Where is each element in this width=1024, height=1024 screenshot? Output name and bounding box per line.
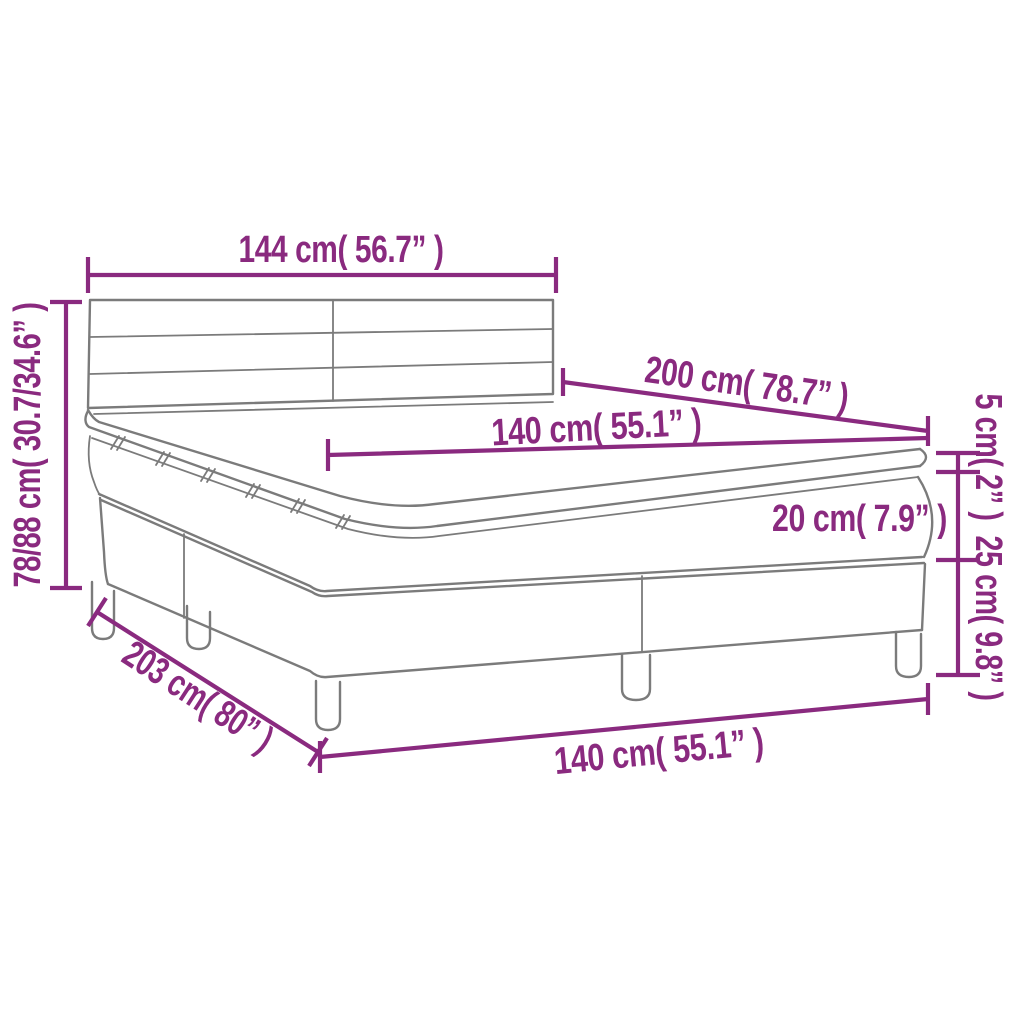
dim-headboard-width-label: 144 cm( 56.7” ) bbox=[239, 229, 444, 271]
dim-topper-height-label: 5 cm( 2” ) bbox=[967, 394, 1009, 521]
mattress-back-edge bbox=[94, 402, 553, 414]
topper-end-cap bbox=[920, 449, 926, 466]
headboard-stripe-1 bbox=[90, 329, 553, 337]
base-right-edge bbox=[922, 564, 925, 630]
leg-near-corner bbox=[316, 681, 340, 730]
bed-dimension-diagram: 144 cm( 56.7” ) 78/88 cm( 30.7/34.6” ) 2… bbox=[0, 0, 1024, 1024]
mattress-left-edge bbox=[89, 436, 100, 495]
base-left-edge bbox=[100, 498, 108, 584]
leg-foot-right bbox=[896, 632, 921, 677]
dim-headboard-width: 144 cm( 56.7” ) bbox=[88, 229, 556, 293]
dim-mattress-height-label: 20 cm( 7.9” ) bbox=[772, 498, 947, 540]
leg-front-left bbox=[92, 582, 114, 639]
dim-frame-length: 203 cm( 80” ) bbox=[88, 598, 327, 766]
dim-bed-height-line bbox=[50, 302, 82, 588]
dim-frame-length-label: 203 cm( 80” ) bbox=[115, 633, 280, 761]
dim-bed-height-label: 78/88 cm( 30.7/34.6” ) bbox=[7, 303, 49, 588]
dim-frame-width: 140 cm( 55.1” ) bbox=[320, 683, 928, 783]
diagram-canvas: 144 cm( 56.7” ) 78/88 cm( 30.7/34.6” ) 2… bbox=[0, 0, 1024, 1024]
dimension-annotations: 144 cm( 56.7” ) 78/88 cm( 30.7/34.6” ) 2… bbox=[7, 229, 1009, 783]
headboard-outline bbox=[88, 300, 553, 408]
base-bottom-edge bbox=[108, 584, 922, 677]
headboard-stripe-2 bbox=[90, 362, 553, 374]
leg-foot-middle bbox=[622, 654, 650, 700]
dim-bed-height: 78/88 cm( 30.7/34.6” ) bbox=[7, 302, 82, 588]
dim-base-height-label: 25 cm( 9.8” ) bbox=[967, 536, 1009, 701]
